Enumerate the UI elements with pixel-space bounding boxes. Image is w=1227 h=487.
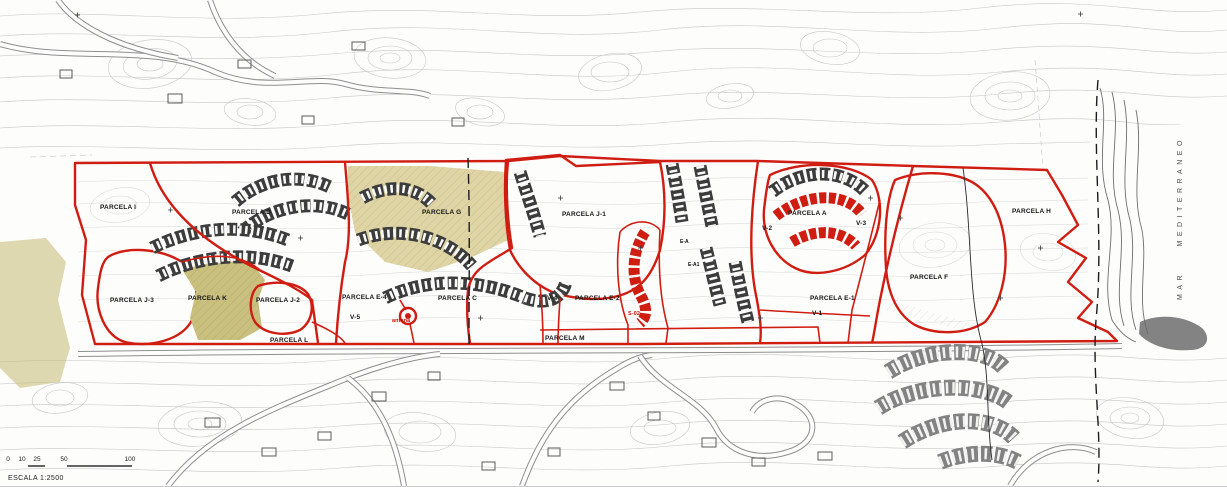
label-v2: V-2	[762, 225, 773, 232]
label-ea: E-A	[680, 239, 689, 245]
site-plan-map: PARCELA I PARCELA D PARCELA J-3 PARCELA …	[0, 0, 1227, 487]
label-parcela-m: PARCELA M	[545, 335, 585, 342]
label-parcela-j1: PARCELA J-1	[562, 211, 606, 218]
sea-label: MAR MEDITERRANEO	[1177, 136, 1184, 300]
parcel-g-hatch	[348, 166, 508, 272]
label-parcela-a: PARCELA A	[788, 210, 827, 217]
scale-tick-0: 0	[6, 456, 10, 463]
scale-label: ESCALA 1:2500	[8, 475, 64, 482]
label-parcela-j3: PARCELA J-3	[110, 297, 154, 304]
parcel-left-edge-fill	[0, 238, 70, 388]
label-antena: antena	[392, 318, 411, 324]
parcel-f-road	[886, 300, 980, 334]
label-parcela-d: PARCELA D	[232, 209, 271, 216]
label-parcela-i: PARCELA I	[100, 204, 136, 211]
label-parcela-f: PARCELA F	[910, 274, 948, 281]
label-parcela-h: PARCELA H	[1012, 208, 1051, 215]
label-parcela-e4: PARCELA E-4	[342, 294, 387, 301]
label-parcela-c: PARCELA C	[438, 295, 477, 302]
parcel-j1-fill	[505, 155, 664, 299]
label-parcela-g: PARCELA G	[422, 209, 461, 216]
label-v1: V-1	[812, 310, 823, 317]
scale-tick-10: 10	[18, 456, 26, 463]
label-v4: V-4	[547, 295, 558, 302]
label-parcela-e2: PARCELA E-2	[575, 295, 620, 302]
label-parcela-e1: PARCELA E-1	[810, 295, 855, 302]
label-parcela-k: PARCELA K	[188, 295, 227, 302]
coastal-cliff	[1100, 88, 1207, 350]
scale-tick-100: 100	[125, 456, 136, 463]
label-parcela-l: PARCELA L	[270, 337, 308, 344]
label-ea1: E-A1	[688, 262, 700, 268]
label-s02: S-02	[628, 311, 640, 317]
label-parcela-j2: PARCELA J-2	[256, 297, 300, 304]
label-v5: V-5	[350, 314, 361, 321]
label-v3: V-3	[856, 220, 867, 227]
scale-tick-25: 25	[33, 456, 41, 463]
existing-buildings-gray	[878, 352, 1018, 462]
scale-tick-50: 50	[60, 456, 68, 463]
